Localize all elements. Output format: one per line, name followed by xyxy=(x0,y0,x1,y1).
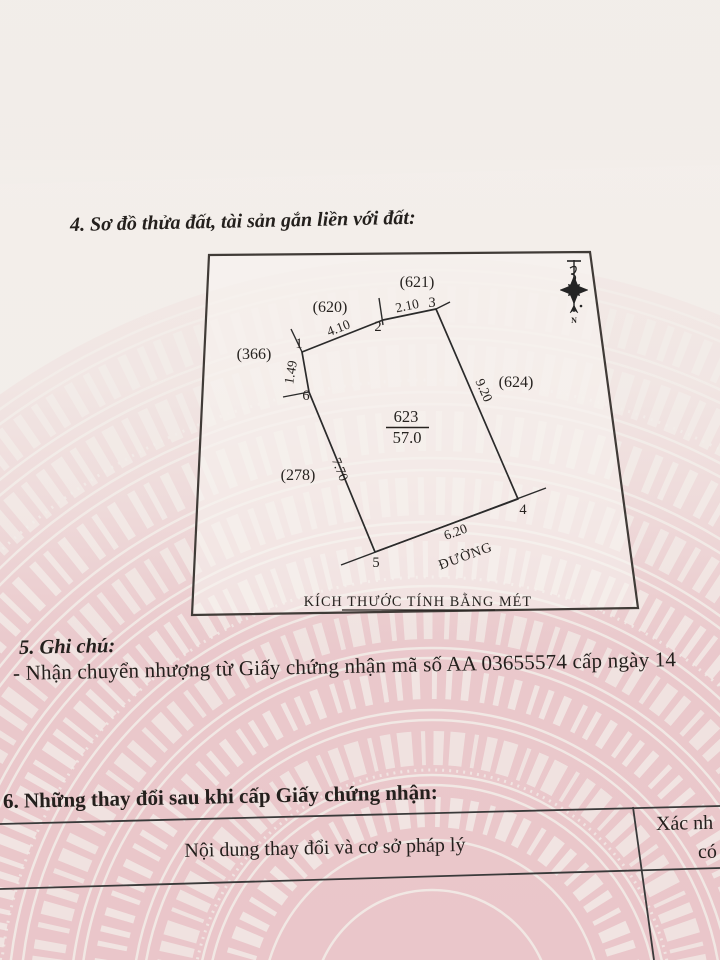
diagram-caption: KÍCH THƯỚC TÍNH BẰNG MÉT xyxy=(304,593,532,610)
adjacent-plot-620: (620) xyxy=(313,299,348,316)
certificate-photo: 1 2 3 4 5 6 4.10 2.10 9.20 6.20 7.70 1.4… xyxy=(0,0,720,960)
vertex-label-4: 4 xyxy=(519,502,527,518)
svg-text:N: N xyxy=(571,316,577,325)
parcel-area: 57.0 xyxy=(393,428,422,447)
parcel-number: 623 xyxy=(394,407,419,426)
vertex-label-5: 5 xyxy=(372,555,379,571)
plot-diagram: 1 2 3 4 5 6 4.10 2.10 9.20 6.20 7.70 1.4… xyxy=(0,0,720,960)
vertex-label-1: 1 xyxy=(295,336,302,352)
table-column-divider xyxy=(633,807,654,960)
table-col2-header-line1: Xác nh xyxy=(656,811,714,837)
adjacent-plot-278: (278) xyxy=(281,467,316,484)
vertex-label-3: 3 xyxy=(428,295,435,311)
section5-title: 5. Ghi chú: xyxy=(19,634,116,661)
vertex-label-6: 6 xyxy=(302,388,309,404)
table-lines xyxy=(0,806,720,960)
vertex-label-2: 2 xyxy=(374,319,381,335)
table-col2-header-line2: có xyxy=(698,840,717,865)
adjacent-plot-624: (624) xyxy=(499,374,534,391)
adjacent-plot-366: (366) xyxy=(237,346,272,363)
adjacent-plot-621: (621) xyxy=(400,274,435,291)
table-header-bottom-border xyxy=(0,868,720,889)
